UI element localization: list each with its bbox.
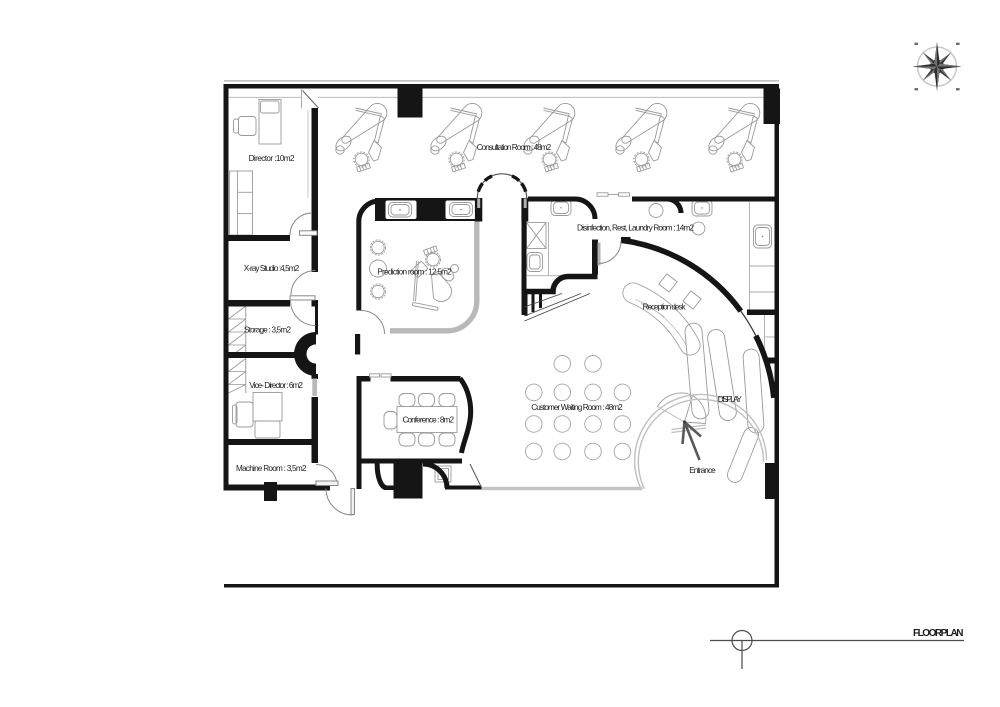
svg-text:Storage : 3,5m2: Storage : 3,5m2 xyxy=(244,326,291,335)
svg-text:Conference : 8m2: Conference : 8m2 xyxy=(403,416,455,425)
svg-text:Director :10m2: Director :10m2 xyxy=(249,154,295,163)
svg-text:DISPLAY: DISPLAY xyxy=(718,395,743,404)
svg-text:FLOORPLAN: FLOORPLAN xyxy=(913,628,964,639)
svg-text:Prediction room : 12,5m2: Prediction room : 12,5m2 xyxy=(377,268,452,277)
svg-text:Customer Waiting Room : 48m2: Customer Waiting Room : 48m2 xyxy=(531,403,623,412)
svg-text:Consultation Room : 48m2: Consultation Room : 48m2 xyxy=(477,143,552,152)
svg-text:Vice- Director : 6m2: Vice- Director : 6m2 xyxy=(249,381,303,390)
svg-text:Machine Room : 3,5m2: Machine Room : 3,5m2 xyxy=(236,464,307,473)
svg-text:Reception desk: Reception desk xyxy=(643,303,687,312)
svg-text:Disinfection, Rest, Laundry Ro: Disinfection, Rest, Laundry Room : 14m2 xyxy=(577,224,694,233)
svg-text:X-ray Studio :4,5m2: X-ray Studio :4,5m2 xyxy=(244,264,300,273)
svg-text:Entrance: Entrance xyxy=(689,466,716,475)
